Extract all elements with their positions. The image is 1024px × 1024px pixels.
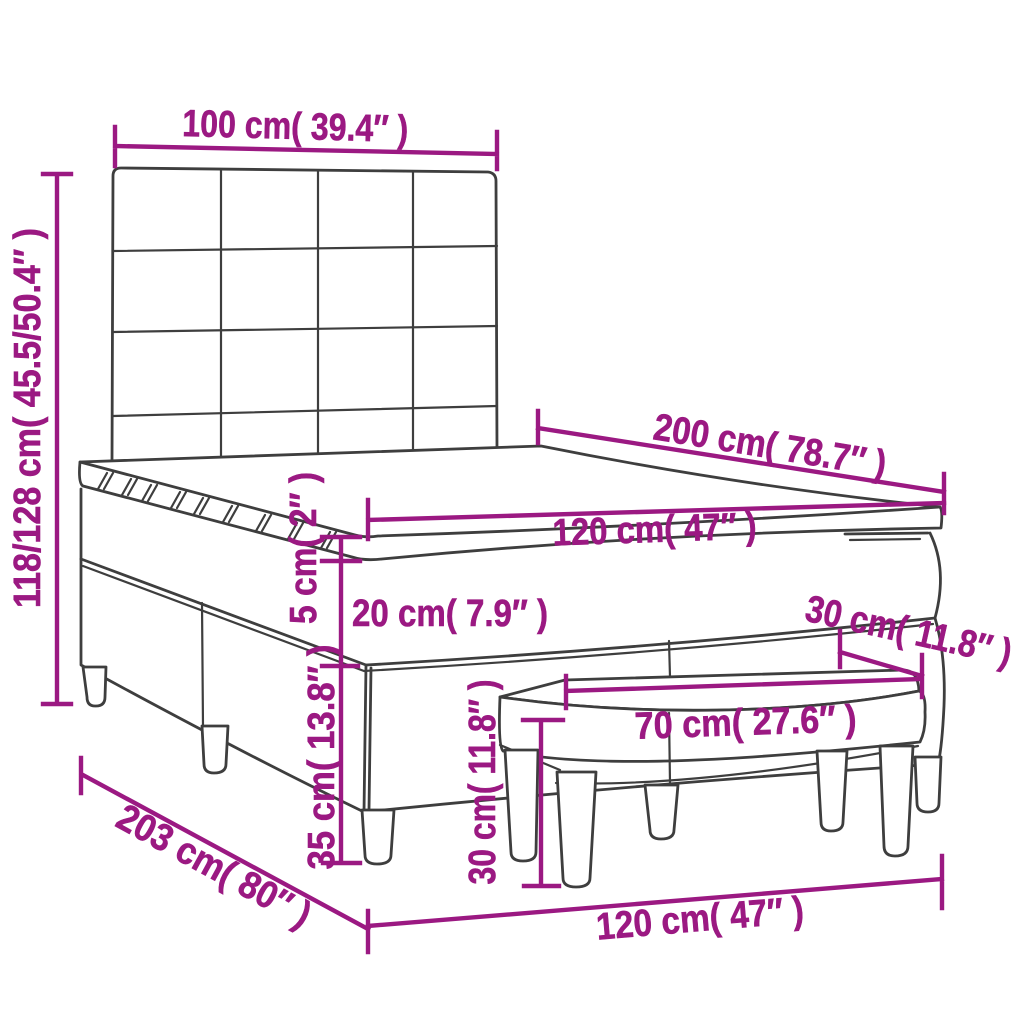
svg-text:120 cm( 47″ ): 120 cm( 47″ ) [595,889,806,948]
svg-text:70 cm( 27.6″ ): 70 cm( 27.6″ ) [634,698,857,748]
svg-text:30 cm( 11.8″ ): 30 cm( 11.8″ ) [802,588,1016,674]
svg-text:120 cm( 47″ ): 120 cm( 47″ ) [552,505,757,554]
svg-text:30 cm( 11.8″ ): 30 cm( 11.8″ ) [462,680,504,885]
svg-text:203 cm( 80″ ): 203 cm( 80″ ) [109,796,318,936]
svg-text:20 cm( 7.9″ ): 20 cm( 7.9″ ) [352,593,548,635]
svg-text:5 cm( 2″ ): 5 cm( 2″ ) [283,472,325,624]
svg-text:118/128 cm( 45.5/50.4″ ): 118/128 cm( 45.5/50.4″ ) [7,228,49,608]
svg-text:100 cm( 39.4″ ): 100 cm( 39.4″ ) [182,103,409,151]
svg-text:35 cm( 13.8″ ): 35 cm( 13.8″ ) [301,645,343,870]
